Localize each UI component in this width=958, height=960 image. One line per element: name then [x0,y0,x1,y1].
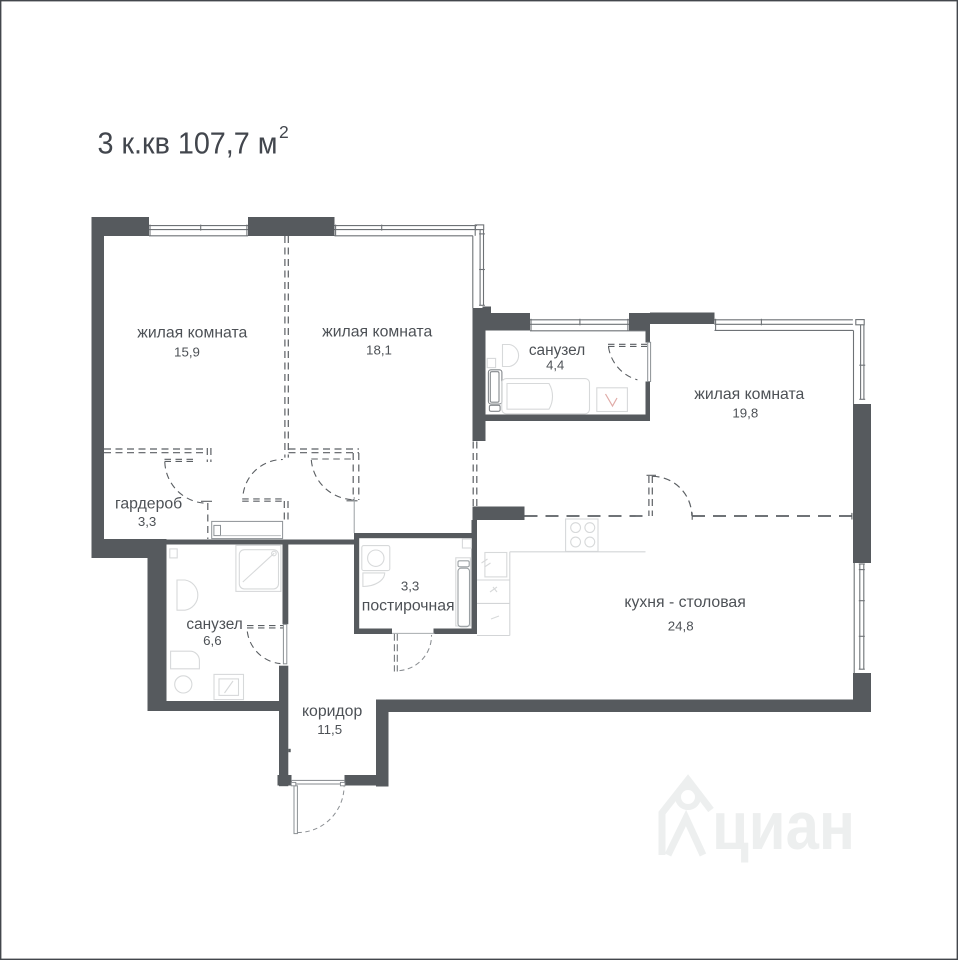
svg-text:жилая комната: жилая комната [137,324,247,341]
svg-text:18,1: 18,1 [366,343,392,358]
svg-text:3,3: 3,3 [401,579,420,594]
svg-text:жилая комната: жилая комната [322,323,432,340]
svg-text:гардероб: гардероб [115,495,182,512]
svg-text:коридор: коридор [302,703,362,720]
svg-text:4,4: 4,4 [546,357,564,372]
svg-text:11,5: 11,5 [317,722,342,737]
svg-text:кухня - столовая: кухня - столовая [624,594,745,611]
svg-text:6,6: 6,6 [203,633,222,648]
svg-text:2: 2 [279,122,289,142]
svg-text:постирочная: постирочная [362,597,455,614]
svg-text:3 к.кв 107,7 м: 3 к.кв 107,7 м [98,127,278,161]
svg-text:19,8: 19,8 [732,406,758,421]
svg-text:24,8: 24,8 [668,619,694,634]
svg-text:жилая комната: жилая комната [694,386,804,403]
svg-text:циан: циан [712,788,855,864]
svg-text:15,9: 15,9 [174,345,200,360]
svg-text:санузел: санузел [186,616,242,633]
svg-text:3,3: 3,3 [138,514,157,529]
